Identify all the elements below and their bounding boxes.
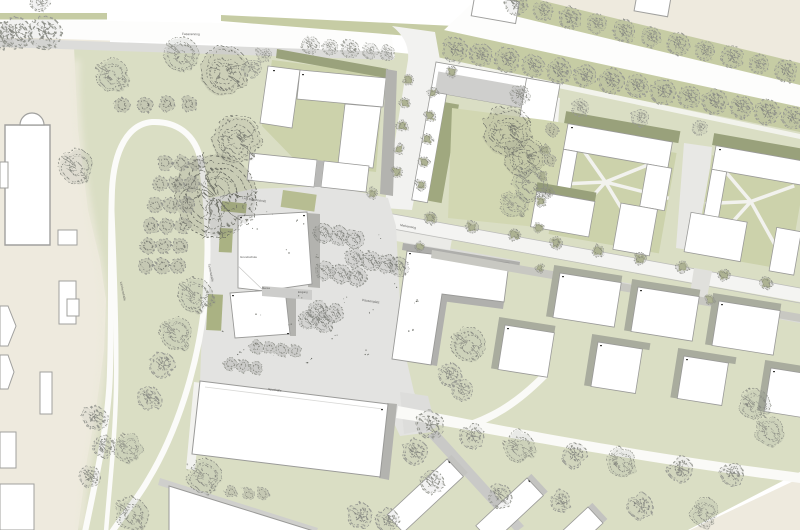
svg-text:Grundschule: Grundschule xyxy=(240,255,257,259)
svg-text:Fasanenring: Fasanenring xyxy=(182,32,200,36)
svg-text:Eingang: Eingang xyxy=(298,290,308,294)
svg-text:Mensa: Mensa xyxy=(262,286,270,290)
